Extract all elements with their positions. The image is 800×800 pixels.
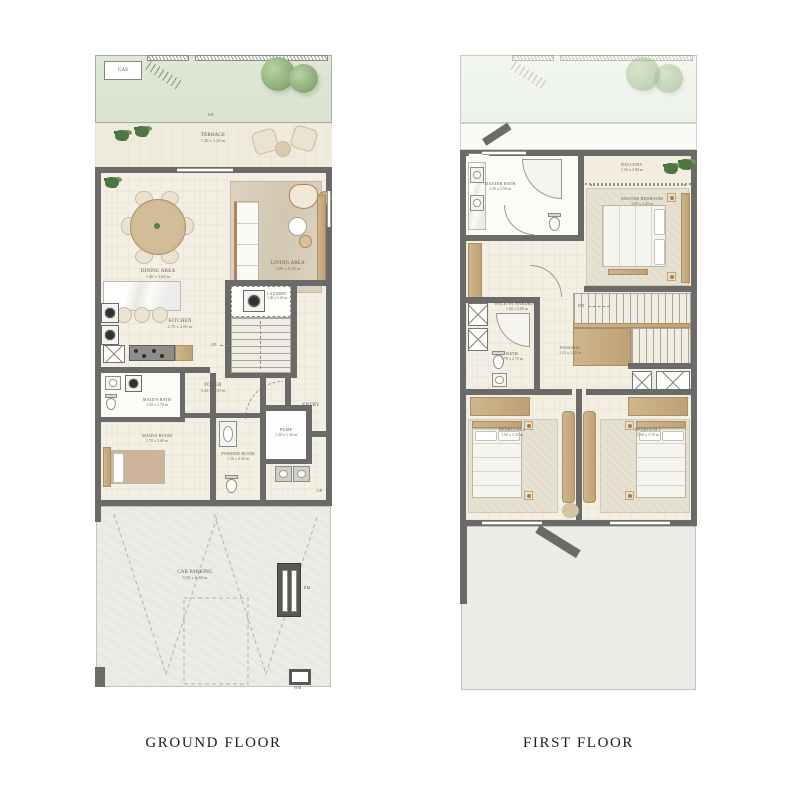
utility-sink-icon — [293, 466, 310, 482]
room-label-bedroom1: BEDROOM 1 3.50 x 3.25 m — [499, 427, 525, 437]
water-meter — [289, 669, 311, 685]
boundary-wall — [195, 55, 328, 61]
first-floor-title: FIRST FLOOR — [460, 735, 697, 752]
terrace-table — [275, 141, 291, 157]
room-label-powder: POWDER ROOM 1.50 x 2.30 m — [221, 451, 255, 461]
sink-icon — [105, 376, 121, 390]
fridge-icon — [101, 303, 119, 323]
plant-icon — [679, 159, 693, 170]
room-label-pump: PUMP 1.30 x 1.30 m — [275, 427, 297, 437]
sink-icon — [103, 345, 125, 363]
room-label-kitchen: KITCHEN 2.70 x 2.60 m — [168, 319, 193, 329]
sofa — [234, 201, 259, 285]
freezer-icon — [101, 325, 119, 345]
tree-icon — [289, 64, 318, 93]
vanity-icon — [219, 421, 237, 447]
up-marker: UP — [208, 112, 214, 117]
ground-floor-title: GROUND FLOOR — [95, 735, 332, 752]
coffee-table — [288, 217, 307, 236]
pillow — [113, 453, 124, 483]
ground-floor-plan: GAS UP TERRACE 7.30 x 1.20 m DINING AREA… — [95, 55, 332, 688]
room-label-balcony: BALCONY 1.50 x 4.90 m — [621, 162, 643, 172]
tall-wardrobe — [583, 411, 596, 503]
wm-marker: WM — [294, 686, 302, 690]
room-label-wardrobe: WALK-IN WARDROBE 1.60 x 2.00 m — [494, 301, 540, 311]
window-railing — [590, 184, 686, 186]
room-label-laundry: LAUNDRY 1.00 x 1.30 m — [267, 292, 287, 300]
sink-icon — [470, 167, 484, 183]
stair-landing — [573, 328, 631, 366]
room-label-maids-room: MAID'S ROOM 2.70 x 2.60 m — [142, 433, 172, 443]
room-label-bath: BATH 1.70 x 2.70 m — [501, 351, 523, 361]
linen-closet-icon — [468, 328, 488, 351]
plant-icon — [664, 163, 678, 174]
plant-icon — [105, 177, 119, 188]
boundary-wall — [560, 55, 693, 61]
room-label-living: LIVING AREA 3.80 x 5.10 m — [271, 261, 305, 271]
sink-icon — [492, 373, 507, 387]
utility-sink-icon — [275, 466, 292, 482]
room-label-foyer: FOYER 3.40 x 1.30 m — [201, 383, 226, 393]
toilet-icon — [225, 475, 238, 494]
room-label-parking: CAR PARKING 5.50 x 6.30 m — [177, 570, 213, 580]
bar-stool — [134, 307, 150, 323]
bar-stool — [152, 307, 168, 323]
dn-marker: DN — [578, 303, 584, 308]
pillow — [475, 431, 497, 441]
toilet-icon — [548, 213, 561, 232]
tall-wardrobe — [562, 411, 575, 503]
plant-icon — [115, 130, 129, 141]
boundary-wall — [147, 55, 189, 61]
plant-icon — [135, 126, 149, 137]
nightstand-lamp — [625, 421, 634, 430]
electrical-meter — [277, 563, 301, 617]
armchair — [289, 184, 318, 209]
wardrobe-unit — [470, 397, 530, 416]
boundary-wall — [512, 55, 554, 61]
tv-console — [317, 195, 326, 283]
room-label-entry: ENTRY — [302, 403, 319, 408]
bed-bench — [608, 269, 648, 275]
washing-machine-icon — [243, 290, 265, 312]
room-label-master-bedroom: MASTER BEDROOM 3.90 x 3.20 m — [621, 196, 663, 206]
room-label-bedroom2: BEDROOM 2 3.00 x 3.70 m — [635, 427, 661, 437]
em-marker: EM — [304, 586, 310, 590]
gas-meter-box: GAS — [104, 61, 142, 80]
first-floor-plan: BALCONY 1.50 x 4.90 m MASTER BATH 3.20 x… — [460, 55, 697, 690]
toilet-icon — [105, 394, 117, 411]
side-table — [299, 235, 312, 248]
nightstand-lamp — [524, 421, 533, 430]
up-marker: UP — [211, 342, 217, 347]
stove-icon — [129, 345, 175, 361]
pillow — [654, 209, 665, 235]
staircase-down — [573, 293, 691, 327]
nightstand-lamp — [667, 272, 676, 281]
gas-label: GAS — [118, 68, 128, 73]
bed-headboard — [103, 447, 111, 487]
pillow — [662, 431, 684, 441]
linen-closet-icon — [468, 303, 488, 326]
staircase-lower — [631, 328, 691, 366]
nightstand-lamp — [524, 491, 533, 500]
room-label-master-bath: MASTER BATH 3.20 x 2.50 m — [484, 181, 515, 191]
kitchen-cabinet — [175, 345, 193, 361]
dining-centerpiece — [154, 223, 160, 229]
room-label-maids-bath: MAID'S BATH 1.50 x 1.70 m — [143, 397, 171, 407]
nightstand-lamp — [667, 193, 676, 202]
pillow — [654, 239, 665, 265]
wardrobe-shelf — [468, 243, 482, 299]
tree-icon — [654, 64, 683, 93]
wardrobe-unit — [628, 397, 688, 416]
nightstand-lamp — [625, 491, 634, 500]
room-label-dining: DINING AREA 3.40 x 3.60 m — [141, 269, 176, 279]
wardrobe-unit — [681, 193, 690, 283]
stool — [562, 503, 579, 518]
room-label-passage: PASSAGE 3.25 x 2.20 m — [559, 345, 581, 355]
sink-icon — [470, 195, 484, 211]
shower-icon — [125, 375, 142, 392]
up-marker: UP — [317, 489, 322, 493]
room-label-terrace: TERRACE 7.30 x 1.20 m — [201, 133, 226, 143]
